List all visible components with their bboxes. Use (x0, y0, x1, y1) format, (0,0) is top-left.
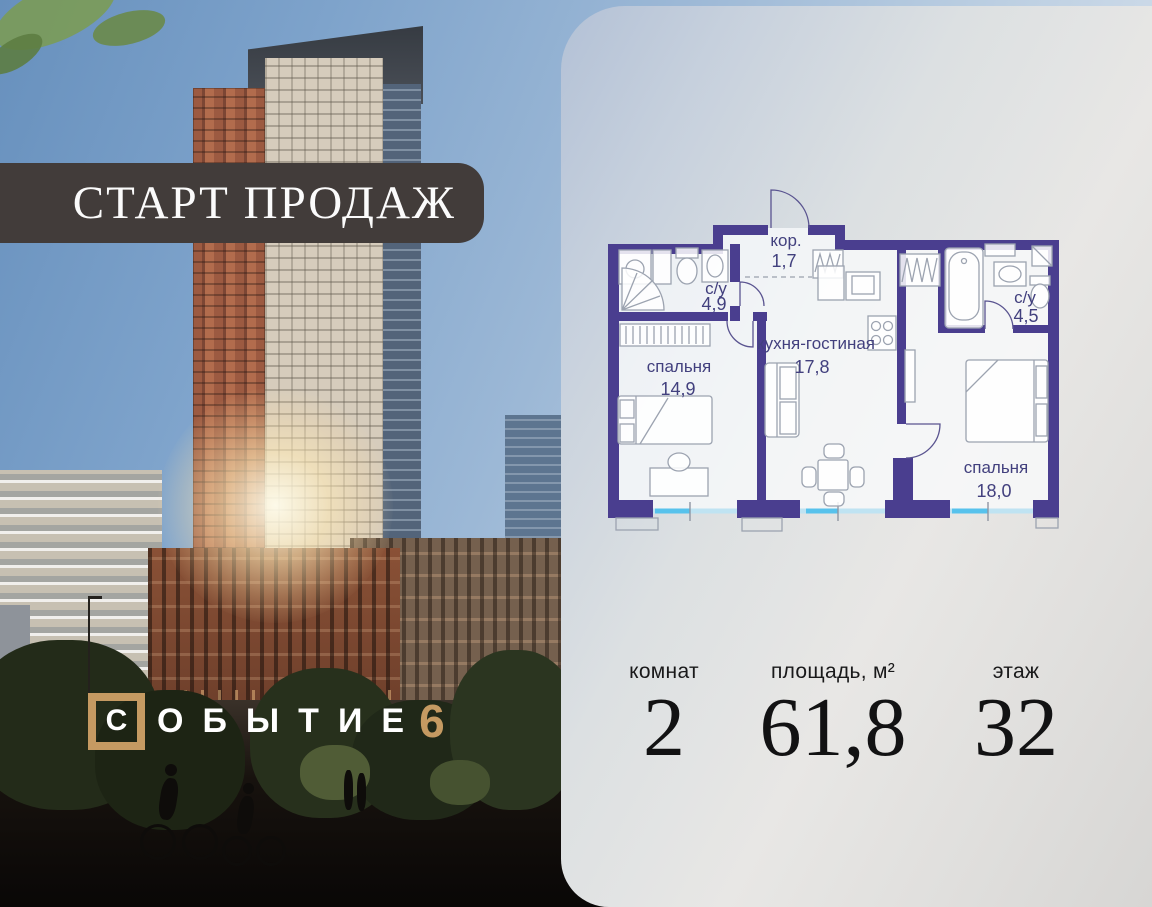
room-label: с/у (1014, 288, 1036, 307)
bush (430, 760, 490, 805)
ac-basket (1036, 518, 1058, 528)
room-area: 1,7 (771, 251, 796, 271)
floor-plan: кор. 1,7 с/у 4,9 спальня 14,9 кухня-гост… (600, 182, 1066, 534)
street-lamp-arm (88, 596, 102, 599)
fridge (818, 266, 844, 300)
room-area: 17,8 (794, 357, 829, 377)
pedestrian-silhouette (357, 773, 366, 811)
bicycle-wheel (256, 836, 286, 866)
cyclist-head (243, 783, 254, 794)
bathtub (945, 248, 983, 328)
room-label: кухня-гостиная (757, 334, 875, 353)
dresser (905, 350, 915, 402)
bicycle-wheel (182, 824, 218, 860)
dining-table (818, 460, 848, 490)
sales-start-banner: СТАРТ ПРОДАЖ (0, 163, 484, 243)
ad-creative: СТАРТ ПРОДАЖ С ОБЫТИЕ 6 (0, 0, 1152, 907)
pedestrian-silhouette (344, 770, 353, 810)
desk-chair (668, 453, 690, 471)
ac-basket (742, 518, 782, 531)
ac-basket (616, 518, 658, 530)
sales-start-banner-text: СТАРТ ПРОДАЖ (73, 176, 456, 230)
cyclist-head (165, 764, 177, 776)
chair (850, 467, 864, 487)
toilet (677, 258, 697, 284)
logo-boxed-letter: С (106, 706, 128, 736)
logo-word: ОБЫТИЕ (157, 704, 423, 738)
chair (824, 492, 844, 506)
stat-rooms-value: 2 (629, 686, 699, 770)
room-label: спальня (647, 357, 712, 376)
stat-floor-value: 32 (974, 686, 1058, 770)
logo-number: 6 (419, 698, 445, 744)
stat-area-value: 61,8 (760, 686, 907, 770)
bicycle-wheel (140, 824, 176, 860)
desk (650, 468, 708, 496)
chair (824, 444, 844, 458)
toilet-tank (676, 248, 698, 258)
stat-area: площадь, м² 61,8 (760, 660, 907, 770)
room-area: 4,5 (1013, 306, 1038, 326)
sun-glare (158, 388, 393, 623)
project-logo: С ОБЫТИЕ 6 (88, 692, 445, 750)
room-area: 4,9 (701, 294, 726, 314)
logo-letter-box: С (88, 693, 145, 750)
stat-rooms: комнат 2 (629, 660, 699, 770)
room-area: 14,9 (660, 379, 695, 399)
chair (802, 467, 816, 487)
room-label: кор. (770, 231, 801, 250)
bath-cabinet (653, 250, 671, 284)
bath-shelf (985, 244, 1015, 256)
room-label: спальня (964, 458, 1029, 477)
bicycle-wheel (222, 836, 252, 866)
entrance-door (771, 190, 809, 228)
stat-floor: этаж 32 (974, 660, 1058, 770)
room-area: 18,0 (976, 481, 1011, 501)
